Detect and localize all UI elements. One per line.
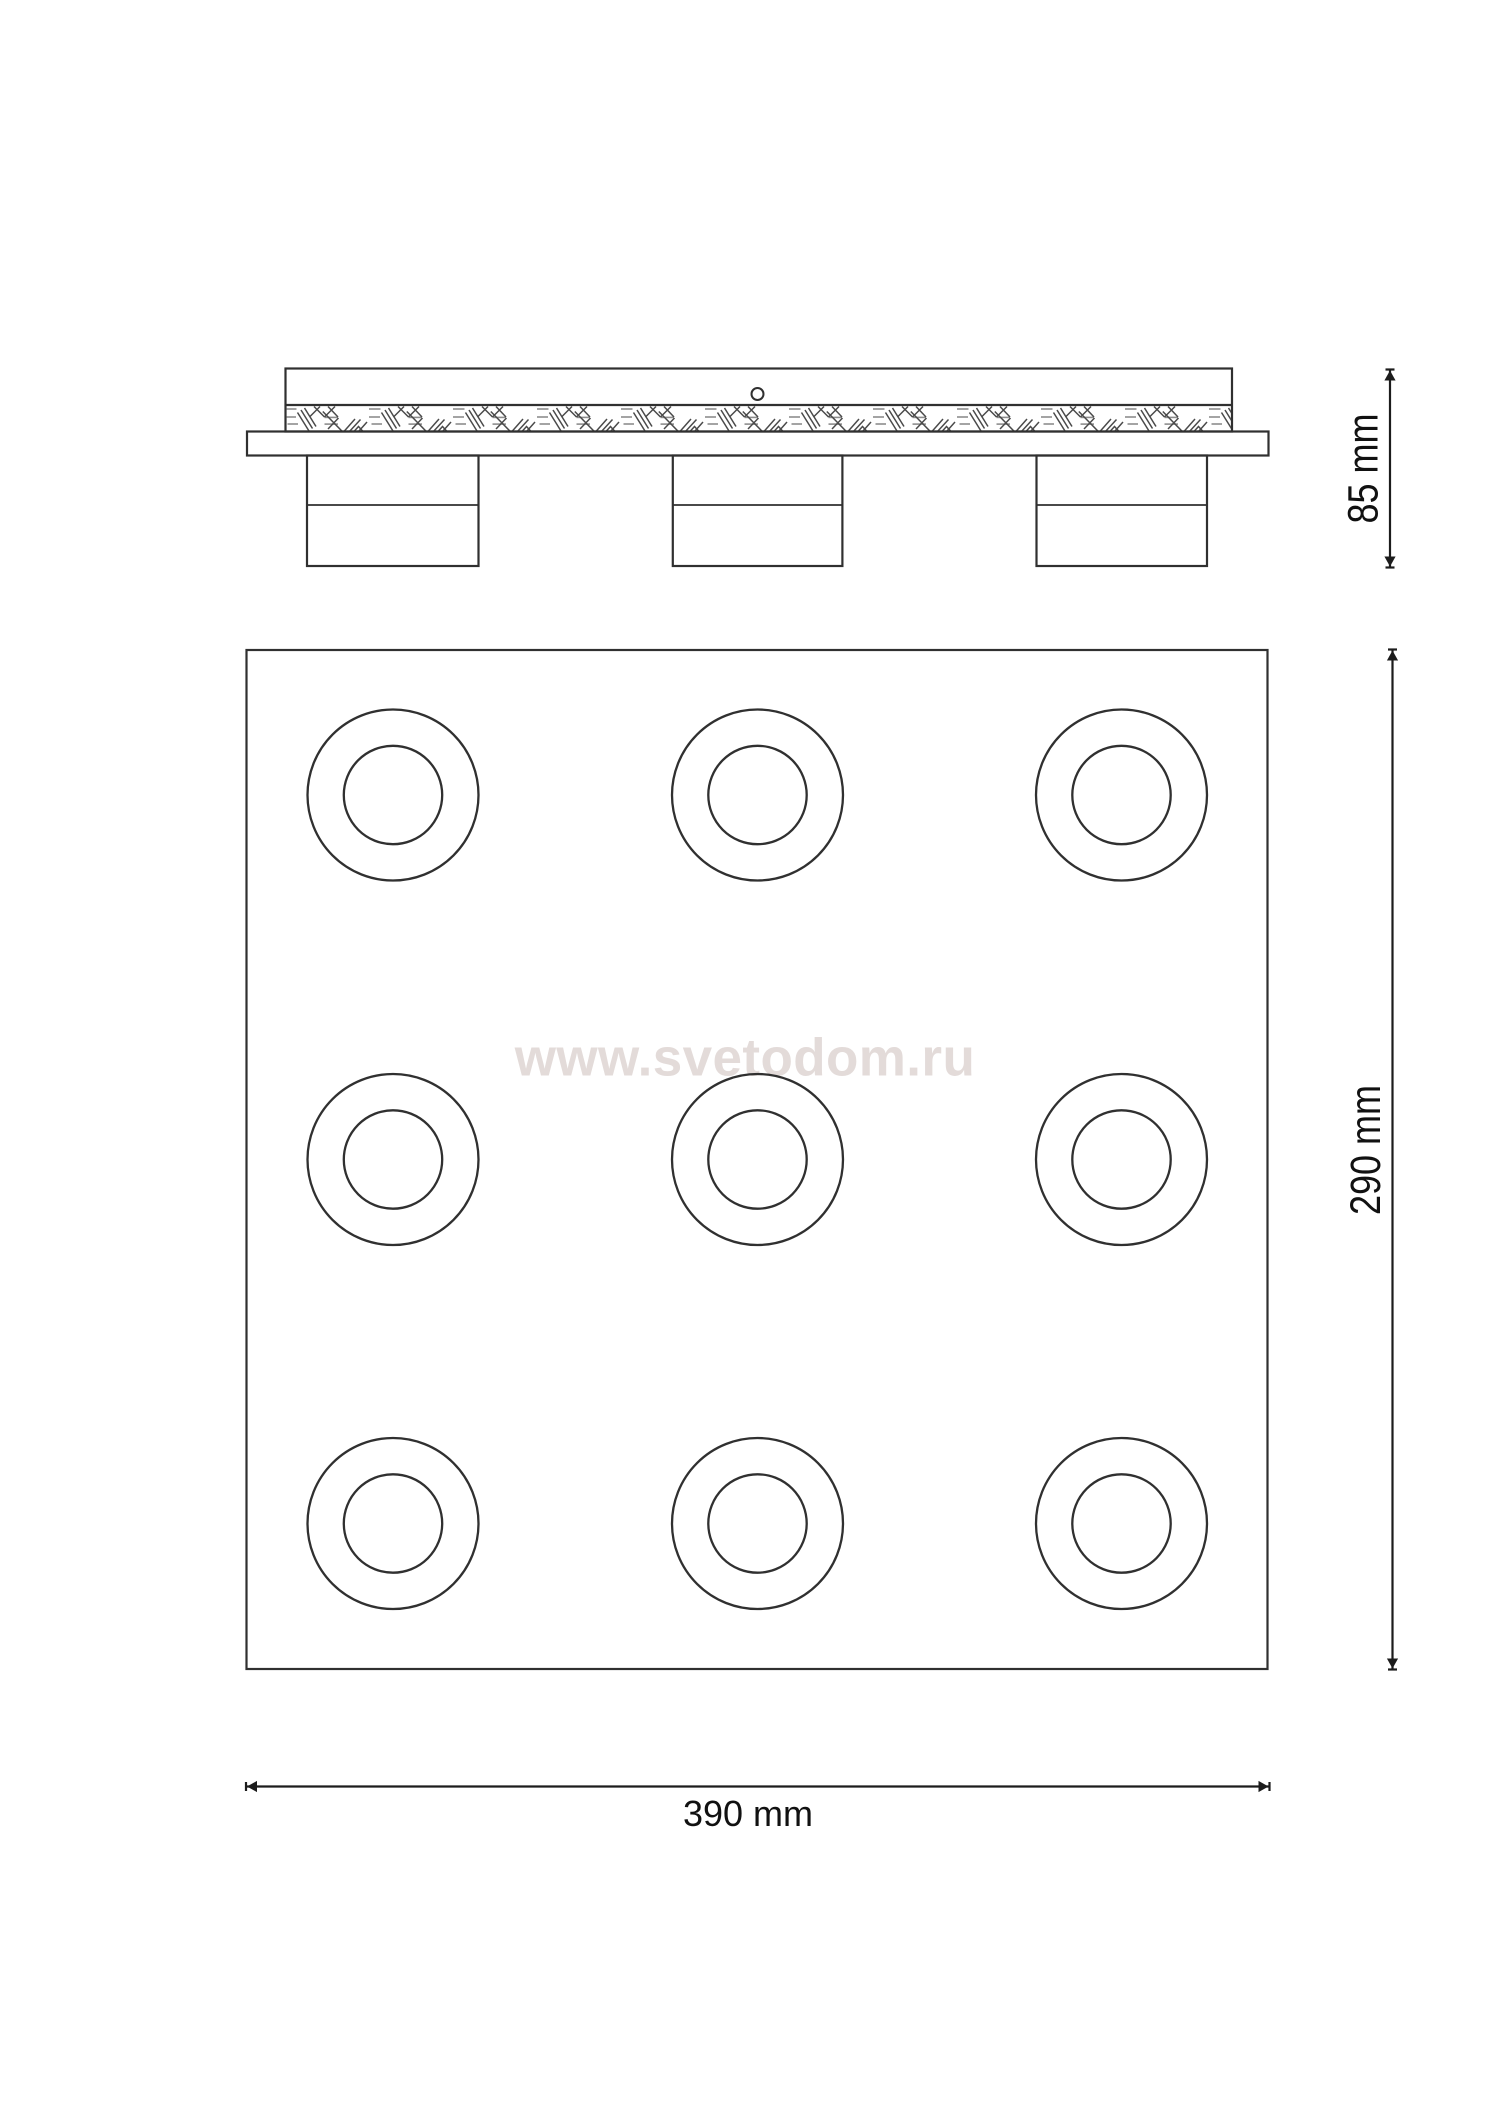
svg-text:290 mm: 290 mm — [1342, 1085, 1389, 1215]
svg-text:390 mm: 390 mm — [683, 1793, 813, 1834]
svg-text:85 mm: 85 mm — [1340, 414, 1387, 524]
svg-text:www.svetodom.ru: www.svetodom.ru — [514, 1029, 976, 1088]
